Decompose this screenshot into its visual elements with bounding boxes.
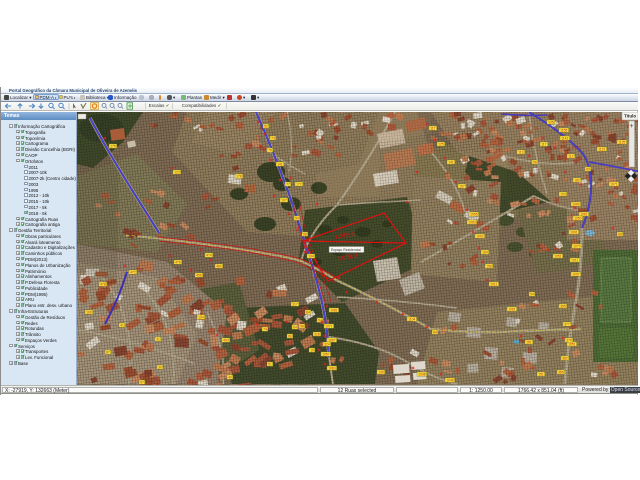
svg-text:69: 69	[586, 167, 590, 171]
svg-text:1038: 1038	[418, 372, 426, 376]
svg-text:Espaço Residencial: Espaço Residencial	[331, 248, 361, 252]
svg-text:Titulo: Titulo	[624, 114, 636, 119]
svg-text:169: 169	[86, 310, 92, 314]
svg-text:117: 117	[430, 126, 436, 130]
svg-text:379: 379	[566, 338, 572, 342]
svg-text:1051: 1051	[554, 254, 562, 258]
svg-text:377: 377	[564, 322, 570, 326]
svg-text:97: 97	[140, 380, 144, 384]
svg-text:66: 66	[288, 334, 292, 338]
svg-text:+: +	[630, 123, 634, 130]
svg-text:96: 96	[533, 160, 537, 164]
svg-text:1090: 1090	[572, 202, 580, 206]
svg-text:31: 31	[156, 337, 160, 341]
svg-text:30: 30	[158, 365, 162, 369]
svg-text:1093: 1093	[468, 220, 476, 224]
svg-text:104: 104	[198, 315, 204, 319]
svg-text:493: 493	[223, 338, 229, 342]
svg-text:107: 107	[459, 184, 465, 188]
svg-text:98: 98	[303, 232, 307, 236]
svg-text:84: 84	[306, 310, 310, 314]
svg-text:1061: 1061	[508, 307, 516, 311]
svg-text:1048: 1048	[446, 378, 454, 382]
svg-text:125: 125	[548, 120, 554, 124]
svg-text:19: 19	[310, 348, 314, 352]
svg-text:1091: 1091	[570, 230, 578, 234]
svg-text:125: 125	[438, 142, 444, 146]
svg-text:141: 141	[448, 160, 454, 164]
svg-text:172: 172	[296, 182, 302, 186]
svg-text:52: 52	[264, 124, 268, 128]
svg-text:1155: 1155	[560, 128, 567, 132]
svg-text:460: 460	[216, 264, 222, 268]
svg-text:88: 88	[618, 232, 622, 236]
svg-text:1095: 1095	[470, 212, 478, 216]
svg-text:54: 54	[530, 292, 534, 296]
svg-text:79: 79	[268, 148, 272, 152]
svg-text:87: 87	[106, 350, 110, 354]
svg-text:1051: 1051	[568, 342, 576, 346]
svg-text:474: 474	[206, 253, 212, 257]
svg-text:382: 382	[562, 356, 568, 360]
svg-text:98: 98	[300, 324, 304, 328]
svg-text:318: 318	[314, 332, 320, 336]
svg-text:1125: 1125	[618, 140, 625, 144]
svg-text:1057: 1057	[322, 352, 330, 356]
svg-text:1092: 1092	[476, 234, 484, 238]
svg-text:123: 123	[174, 170, 180, 174]
svg-text:151: 151	[538, 372, 544, 376]
svg-text:117: 117	[541, 142, 547, 146]
svg-text:51: 51	[268, 362, 272, 366]
svg-text:100: 100	[378, 370, 384, 374]
svg-text:94: 94	[295, 216, 299, 220]
svg-text:74: 74	[263, 327, 267, 331]
svg-text:107: 107	[281, 198, 287, 202]
svg-text:365: 365	[560, 304, 566, 308]
svg-text:103: 103	[560, 192, 566, 196]
svg-text:113: 113	[518, 150, 524, 154]
svg-text:73: 73	[271, 136, 275, 140]
svg-text:324: 324	[324, 342, 330, 346]
svg-text:476: 476	[175, 260, 181, 264]
svg-text:1007: 1007	[572, 272, 580, 276]
svg-text:1071: 1071	[325, 324, 333, 328]
svg-text:1050: 1050	[574, 216, 582, 220]
svg-text:158: 158	[486, 264, 492, 268]
svg-text:1079: 1079	[573, 244, 581, 248]
svg-text:317: 317	[292, 302, 298, 306]
svg-text:141: 141	[277, 162, 283, 166]
svg-text:112: 112	[568, 154, 574, 158]
svg-text:182: 182	[574, 178, 580, 182]
svg-text:1081: 1081	[330, 308, 338, 312]
svg-text:104: 104	[308, 254, 314, 258]
svg-text:1011: 1011	[490, 282, 497, 286]
svg-text:77: 77	[286, 182, 290, 186]
svg-text:1071: 1071	[610, 182, 618, 186]
svg-text:1011: 1011	[571, 258, 578, 262]
svg-text:64: 64	[293, 325, 297, 329]
svg-text:472: 472	[130, 270, 136, 274]
svg-text:1122: 1122	[598, 147, 605, 151]
svg-text:456: 456	[196, 273, 202, 277]
svg-text:478: 478	[100, 282, 106, 286]
svg-text:164: 164	[482, 250, 488, 254]
svg-text:151: 151	[526, 340, 532, 344]
svg-text:1063: 1063	[328, 366, 336, 370]
svg-text:1104: 1104	[408, 317, 415, 321]
svg-text:1143: 1143	[561, 136, 568, 140]
svg-text:178: 178	[236, 174, 242, 178]
svg-text:175: 175	[110, 144, 116, 148]
svg-text:84: 84	[433, 330, 437, 334]
svg-text:40: 40	[228, 375, 232, 379]
svg-text:41: 41	[120, 323, 124, 327]
svg-text:385: 385	[558, 370, 564, 374]
